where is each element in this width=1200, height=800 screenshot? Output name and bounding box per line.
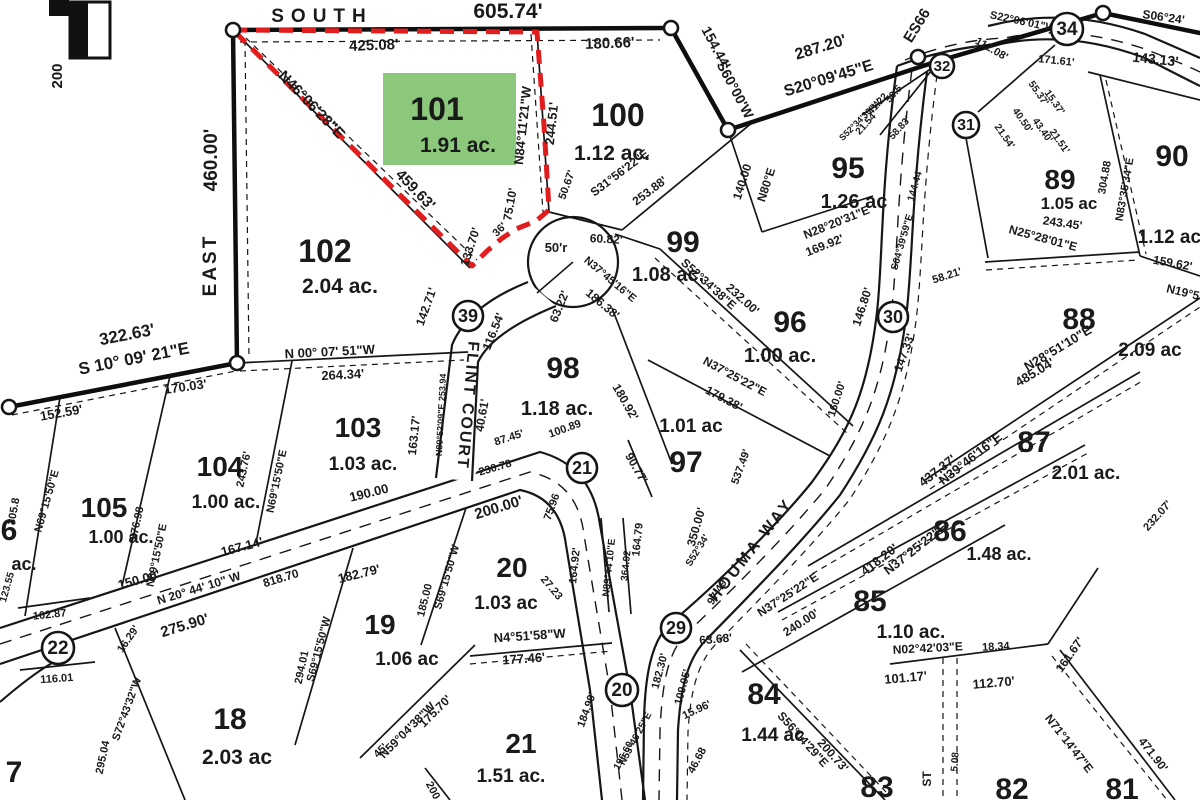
survey-monument-marker xyxy=(664,21,678,35)
survey-dimension-label: 116.01 xyxy=(40,672,74,686)
survey-dimension-label: 6 xyxy=(1,514,18,547)
lot-89-acreage: 1.05 ac xyxy=(1041,194,1098,213)
lot-84-number[interactable]: 84 xyxy=(747,678,781,711)
lot-85-number[interactable]: 85 xyxy=(853,585,886,618)
survey-dimension-label: 605.74' xyxy=(473,0,542,23)
lot-96-number[interactable]: 96 xyxy=(773,306,806,339)
lot-84-acreage: 1.44 ac xyxy=(741,725,805,746)
road-station-31-label: 31 xyxy=(957,117,975,134)
survey-dimension-label: 63.68' xyxy=(699,631,733,648)
road-station-22-label: 22 xyxy=(47,638,68,659)
lot-82-number[interactable]: 82 xyxy=(995,773,1028,800)
survey-dimension-label: 264.34' xyxy=(321,366,365,383)
road-station-20-label: 20 xyxy=(611,680,632,701)
road-station-21-label: 21 xyxy=(572,458,592,478)
lot-99-number[interactable]: 99 xyxy=(666,226,699,259)
lot-103-acreage: 1.03 ac. xyxy=(329,454,398,475)
survey-monument-marker xyxy=(911,50,925,64)
lot-98-number[interactable]: 98 xyxy=(546,352,579,385)
survey-dimension-label: 60.82' xyxy=(589,231,623,247)
survey-dimension-label: 460.00' xyxy=(201,129,222,192)
lot-87-acreage: 2.01 ac. xyxy=(1052,463,1121,484)
lot-21-number[interactable]: 21 xyxy=(505,728,536,759)
lot-96-acreage: 1.00 ac. xyxy=(744,345,816,367)
lot-90-acreage: 1.12 ac. xyxy=(1138,227,1200,248)
plat-map-canvas: 200 SOUTH605.74'425.08'180.66'154.44'S60… xyxy=(0,0,1200,800)
road-station-32-label: 32 xyxy=(934,58,951,75)
lot-19-acreage: 1.06 ac xyxy=(375,649,439,670)
road-station-29-label: 29 xyxy=(666,618,686,638)
lot-86-acreage: 1.48 ac. xyxy=(966,544,1031,564)
lot-19-number[interactable]: 19 xyxy=(364,609,395,640)
lot-88-number[interactable]: 88 xyxy=(1062,303,1095,336)
survey-dimension-label: 177.46' xyxy=(502,650,546,668)
lot-18-number[interactable]: 18 xyxy=(213,703,246,736)
lot-104-acreage: 1.00 ac. xyxy=(192,492,261,513)
road-station-34-label: 34 xyxy=(1056,19,1078,40)
lot-85-acreage: 1.10 ac. xyxy=(877,622,946,643)
lot-100-acreage: 1.12 ac. xyxy=(574,142,650,165)
survey-monument-marker xyxy=(721,123,735,137)
lot-98-acreage: 1.18 ac. xyxy=(521,398,593,420)
survey-monument-marker xyxy=(1096,6,1110,20)
scale-bar-block xyxy=(49,0,69,16)
survey-dimension-label: SOUTH xyxy=(271,6,373,27)
scale-bar-fill xyxy=(70,2,88,58)
lot-86-number[interactable]: 86 xyxy=(933,515,966,548)
survey-dimension-label: 5.08 xyxy=(949,751,961,772)
lot-20-number[interactable]: 20 xyxy=(496,552,527,583)
survey-monument-marker xyxy=(2,400,16,414)
lot-99-acreage: 1.08 ac. xyxy=(632,264,704,286)
lot-100-number[interactable]: 100 xyxy=(591,97,644,133)
survey-dimension-label: ac. xyxy=(11,554,36,574)
scale-bar-label: 200 xyxy=(49,63,66,88)
lot-90-number[interactable]: 90 xyxy=(1155,140,1188,173)
lot-95-acreage: 1.26 ac xyxy=(821,191,888,213)
lot-88-acreage: 2.09 ac xyxy=(1118,340,1182,361)
lot-97-acreage: 1.01 ac xyxy=(659,416,723,437)
lot-89-number[interactable]: 89 xyxy=(1044,164,1075,195)
survey-dimension-label: 425.08' xyxy=(349,36,399,55)
lot-20-acreage: 1.03 ac xyxy=(474,593,538,614)
lot-104-number[interactable]: 104 xyxy=(197,451,244,482)
survey-dimension-label: EAST xyxy=(200,234,221,297)
lot-102-acreage: 2.04 ac. xyxy=(302,275,378,298)
survey-dimension-label: 7 xyxy=(6,756,23,789)
survey-dimension-label: 180.66' xyxy=(585,34,635,53)
lot-83-number[interactable]: 83 xyxy=(860,771,893,800)
lot-105-acreage: 1.00 ac. xyxy=(88,527,153,547)
lot-81-number[interactable]: 81 xyxy=(1105,773,1138,800)
survey-dimension-label: 50'r xyxy=(545,240,568,255)
survey-monument-marker xyxy=(226,23,240,37)
survey-monument-marker xyxy=(230,356,244,370)
lot-103-number[interactable]: 103 xyxy=(335,412,382,443)
lot-21-acreage: 1.51 ac. xyxy=(477,766,546,787)
lot-95-number[interactable]: 95 xyxy=(831,152,864,185)
lot-101-acreage: 1.91 ac. xyxy=(420,134,496,157)
lot-105-number[interactable]: 105 xyxy=(81,492,128,523)
lot-102-number[interactable]: 102 xyxy=(298,233,351,269)
lot-18-acreage: 2.03 ac xyxy=(202,746,272,769)
lot-101-number[interactable]: 101 xyxy=(410,91,463,127)
survey-dimension-label: ST xyxy=(920,771,934,787)
road-station-30-label: 30 xyxy=(883,307,903,327)
lot-97-number[interactable]: 97 xyxy=(669,446,702,479)
road-station-39-label: 39 xyxy=(458,306,478,326)
survey-dimension-label: 18.34 xyxy=(982,640,1011,653)
lot-87-number[interactable]: 87 xyxy=(1017,426,1050,459)
